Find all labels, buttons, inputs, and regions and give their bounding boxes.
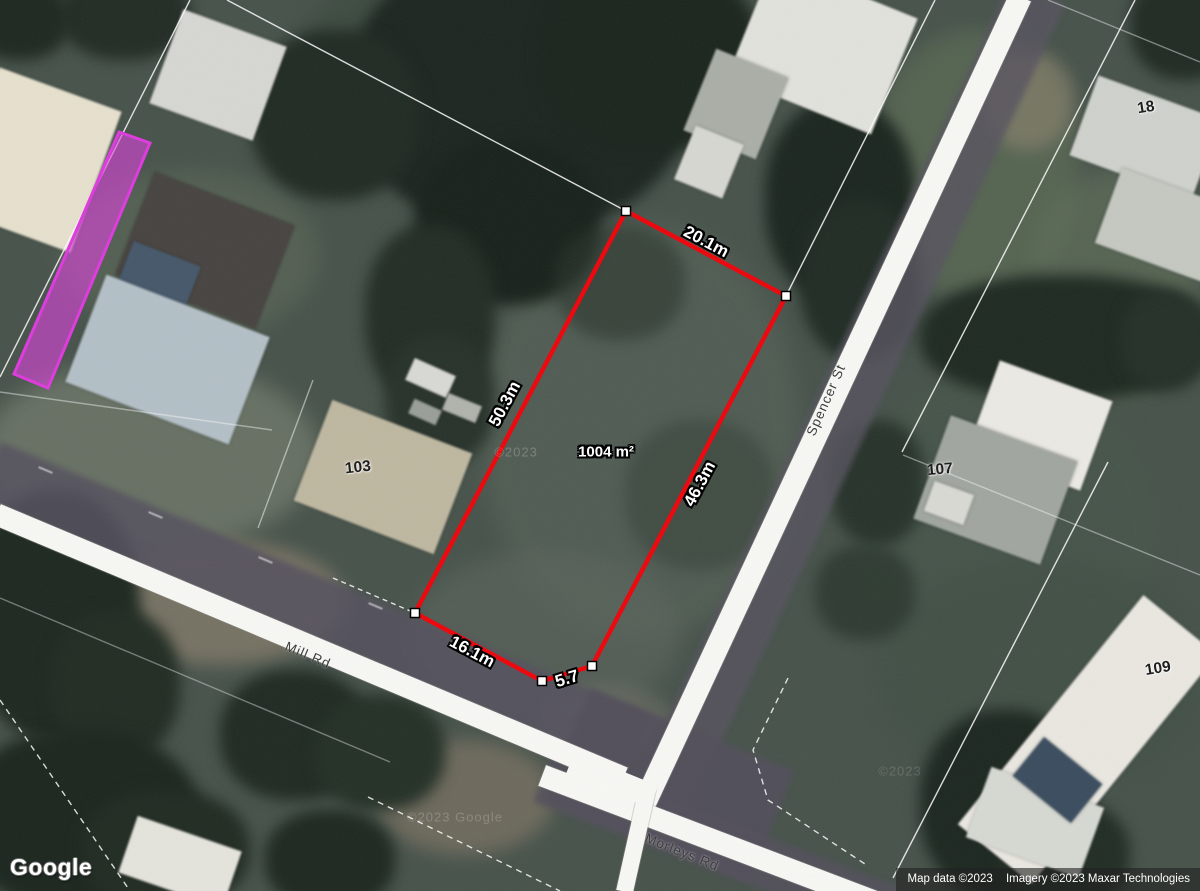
- parcel-area-label: 1004 m²: [578, 444, 634, 461]
- imagery-watermark: ©2023: [878, 764, 922, 779]
- satellite-map-canvas[interactable]: Spencer St Mill Rd Morleys Rd 20.1m 50.3…: [0, 0, 1200, 891]
- attribution-imagery[interactable]: Imagery ©2023 Maxar Technologies: [1006, 873, 1190, 885]
- imagery-watermark: ©2023: [494, 445, 538, 460]
- attribution-bar: Map data ©2023 Imagery ©2023 Maxar Techn…: [896, 868, 1200, 891]
- vertex-handle[interactable]: [538, 677, 547, 686]
- vertex-handle[interactable]: [782, 292, 791, 301]
- highlighted-strip[interactable]: [14, 132, 150, 388]
- imagery-watermark: ©2023 Google: [407, 810, 503, 825]
- vertex-handle[interactable]: [411, 609, 420, 618]
- house-number-18: 18: [1136, 98, 1156, 118]
- google-logo[interactable]: Google: [10, 854, 92, 881]
- house-number-103: 103: [344, 458, 372, 479]
- vertex-handle[interactable]: [588, 662, 597, 671]
- attribution-map-data: Map data ©2023: [908, 873, 993, 885]
- house-number-107: 107: [926, 460, 953, 480]
- vertex-handle[interactable]: [622, 207, 631, 216]
